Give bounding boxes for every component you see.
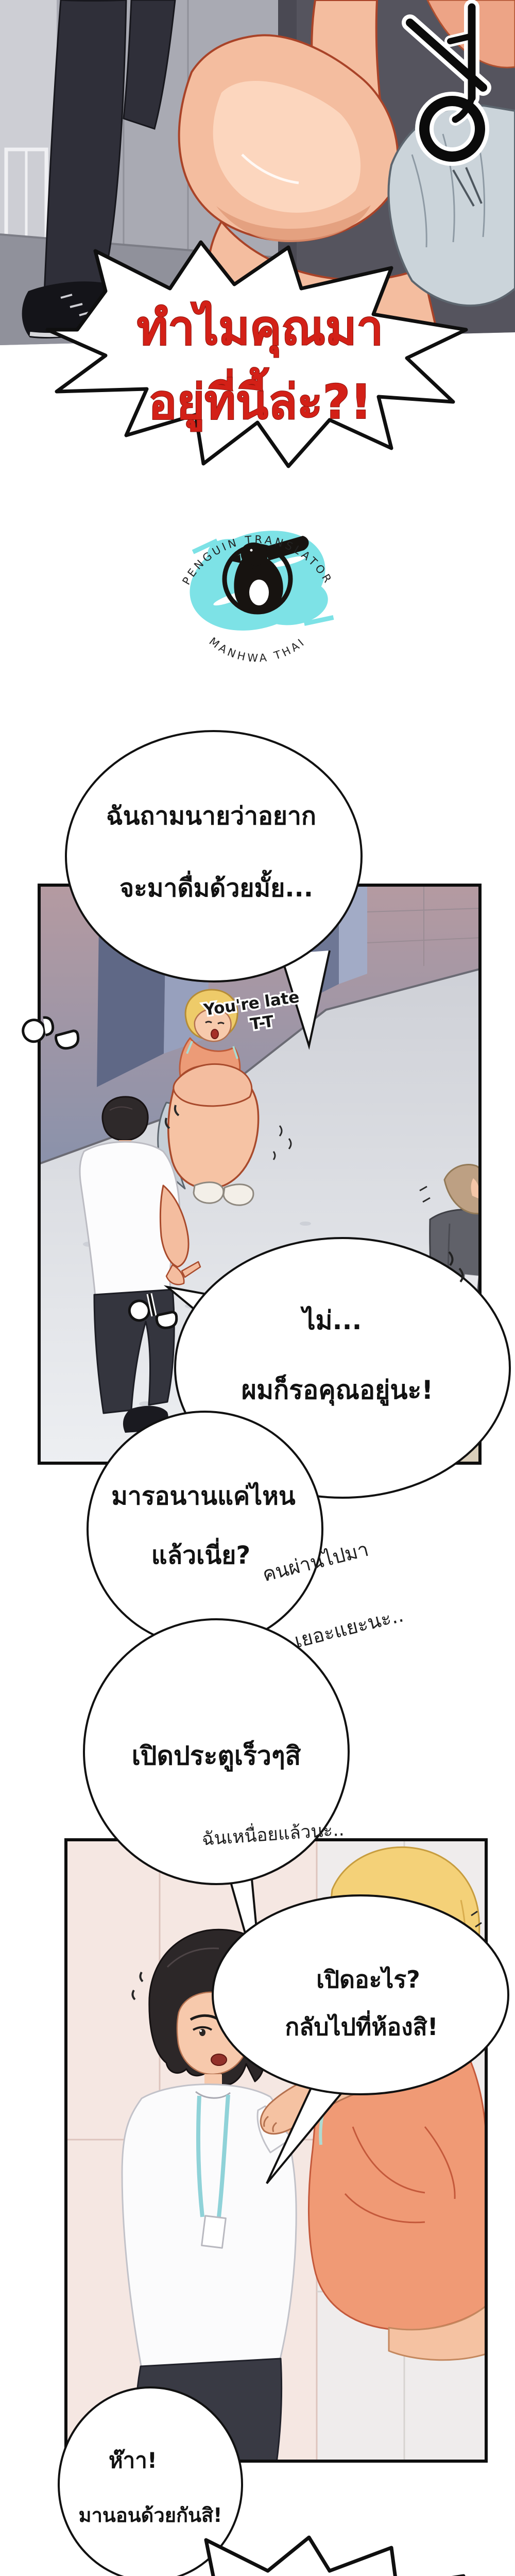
title-line-1: ทำไมคุณมา <box>137 300 383 358</box>
title-line-2: อยู่ที่นี้ล่ะ?! <box>148 367 372 432</box>
overlay-layer: ทำไมคุณมา อยู่ที่นี้ล่ะ?! <box>0 0 515 2576</box>
bubble-6-line-1: ห๊าา! <box>109 2448 157 2473</box>
sfx-korean-left-icon <box>21 1010 80 1059</box>
sfx-korean-top-icon <box>410 7 483 157</box>
translator-logo: PENGUIN TRANSLATOR MANHWA THAI <box>177 514 338 665</box>
bubble-4-line-1: เปิดประตูเร็วๆสิ <box>132 1740 301 1772</box>
sfx-korean-center-icon <box>127 1289 178 1335</box>
comic-page: ทำไมคุณมา อยู่ที่นี้ล่ะ?! <box>0 0 515 2576</box>
bubble-2-line-2: ผมก็รอคุณอยู่นะ! <box>242 1374 433 1406</box>
bubble-3-line-1: มารอนานแค่ไหน <box>111 1481 296 1511</box>
bubble-6-line-2: มานอนด้วยกันสิ! <box>79 2504 222 2527</box>
speech-bubble-5: เปิดอะไร? กลับไปที่ห้องสิ! <box>213 1895 508 2183</box>
bubble-5-line-1: เปิดอะไร? <box>316 1965 420 1993</box>
sfx-youre-late: You're late T-T <box>202 988 303 1040</box>
title-bubble: ทำไมคุณมา อยู่ที่นี้ล่ะ?! <box>47 242 466 466</box>
speech-bubble-1: ฉันถามนายว่าอยาก จะมาดื่มด้วยมั้ย... <box>66 731 362 1046</box>
bubble-3-note-line-2: เยอะแยะนะ.. <box>292 1603 405 1652</box>
bubble-1-line-1: ฉันถามนายว่าอยาก <box>106 802 316 831</box>
bubble-5-line-2: กลับไปที่ห้องสิ! <box>285 2010 438 2041</box>
sfx-youre-late-line-2: T-T <box>249 1012 275 1034</box>
bubble-3-line-2: แล้วเนี่ย? <box>151 1537 251 1570</box>
logo-arc-bottom-label: MANHWA THAI <box>207 635 308 665</box>
bubble-1-line-2: จะมาดื่มด้วยมั้ย... <box>119 870 313 903</box>
bubble-2-line-1: ไม่... <box>300 1306 362 1335</box>
